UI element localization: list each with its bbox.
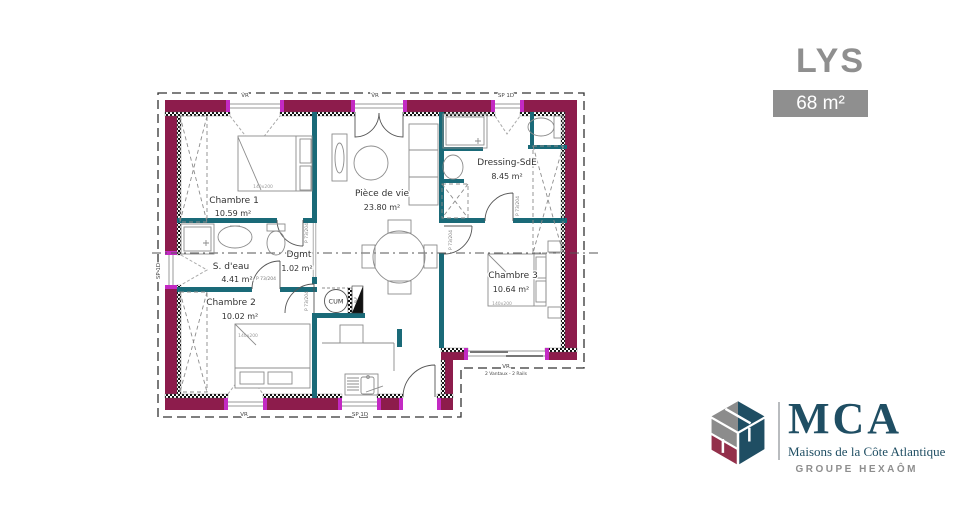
bay-label-vr: VR: [502, 364, 510, 370]
brand-block: MCA Maisons de la Côte Atlantique GROUPE…: [700, 394, 930, 489]
washbasin: [218, 226, 252, 248]
door-label: P 73/204: [515, 196, 521, 216]
wc: [267, 224, 285, 231]
room-label-dressing: Dressing-SdE: [477, 158, 537, 168]
room-label-chambre3: Chambre 3: [488, 271, 538, 281]
shower: [443, 114, 487, 148]
window-label-sp1d: SP 1D: [352, 412, 368, 418]
dining-table: [373, 231, 425, 283]
room-area-piece-de-vie: 23.80 m²: [364, 203, 400, 212]
brand-tagline: Maisons de la Côte Atlantique: [788, 444, 945, 460]
annotations: VR VR SP 1D VR SP 1D SP 1D VR 2 Vantaux …: [156, 93, 528, 418]
room-area-dgmt: 1.02 m²: [281, 264, 312, 273]
room-label-chambre1: Chambre 1: [209, 196, 259, 206]
brand-separator: [778, 402, 780, 460]
cased-opening: [313, 223, 316, 277]
sofa: [409, 124, 438, 205]
door-label: P 73/204: [304, 223, 310, 243]
surface-value: 68 m²: [796, 93, 845, 115]
shower: [181, 224, 214, 254]
sideboard: [332, 134, 347, 181]
door-label: P 73/204: [304, 291, 310, 311]
water-heater: CUM SLF: [325, 290, 359, 313]
wardrobe: [180, 116, 207, 222]
window-label-vr: VR: [371, 93, 379, 99]
room-area-chambre1: 10.59 m²: [215, 209, 251, 218]
room-label-dgmt: Dgmt: [287, 250, 312, 260]
surface-badge: 68 m²: [773, 90, 868, 117]
window-label-vr: VR: [241, 93, 249, 99]
room-area-chambre3: 10.64 m²: [493, 285, 529, 294]
room-area-chambre2: 10.02 m²: [222, 312, 258, 321]
wardrobe: [180, 292, 207, 392]
model-name: LYS: [796, 42, 865, 81]
room-label-piece-de-vie: Pièce de vie: [355, 188, 410, 199]
door-label: P 73/204: [256, 276, 276, 282]
window-label-vr: VR: [240, 412, 248, 418]
bed-size-label: 140x200: [238, 333, 258, 339]
room-label-sdeau: S. d'eau: [213, 262, 249, 272]
mca-logo-cube-icon: [706, 400, 770, 468]
duct-label: SLF: [354, 297, 358, 303]
door-label: P 73/204: [448, 230, 454, 250]
window-label-sp1d: SP 1D: [498, 93, 514, 99]
window-label-sp1d: SP 1D: [156, 263, 162, 279]
washbasin: [443, 155, 463, 179]
bay-label-type: 2 Vantaux - 2 Rails: [485, 371, 528, 377]
cum-label: CUM: [329, 298, 344, 306]
bed-size-label: 140x200: [492, 301, 512, 307]
room-area-sdeau: 4.41 m²: [221, 275, 252, 284]
bed-size-label: 140x200: [253, 184, 273, 190]
brand-initials: MCA: [788, 393, 902, 444]
room-label-chambre2: Chambre 2: [206, 298, 256, 308]
pouf: [354, 146, 388, 180]
brand-group: GROUPE HEXAÔM: [700, 464, 918, 475]
room-area-dressing: 8.45 m²: [491, 172, 522, 181]
